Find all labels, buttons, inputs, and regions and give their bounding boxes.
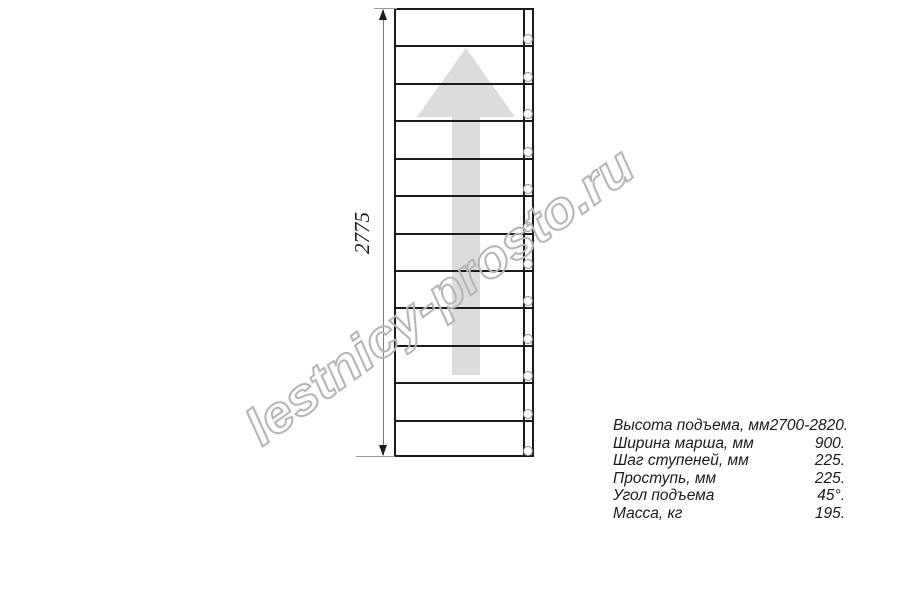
spec-label: Масса, кг (613, 505, 682, 523)
bolt-circle (523, 222, 533, 232)
spec-label: Проступь, мм (613, 470, 716, 488)
stair-plan-outline (394, 8, 534, 457)
step-line (396, 158, 532, 160)
step-line (396, 307, 532, 309)
step-line (396, 382, 532, 384)
bolt-circle (523, 296, 533, 306)
spec-row: Угол подъема 45°. (613, 487, 845, 505)
extension-line-bottom (356, 456, 395, 457)
spec-row: Проступь, мм 225. (613, 470, 845, 488)
dimension-arrow-up-icon (379, 9, 387, 20)
step-line (396, 420, 532, 422)
spec-value: 225. (815, 452, 845, 470)
step-line (396, 45, 532, 47)
bolt-circle (523, 371, 533, 381)
spec-row: Ширина марша, мм 900. (613, 435, 845, 453)
spec-row: Масса, кг 195. (613, 505, 845, 523)
step-line (396, 270, 532, 272)
bolt-circle (523, 184, 533, 194)
step-line (396, 120, 532, 122)
spec-label: Высота подъема, мм (613, 417, 770, 435)
bolt-circle (523, 72, 533, 82)
bolt-circle (523, 34, 533, 44)
step-line (396, 83, 532, 85)
step-line (396, 195, 532, 197)
bolt-circle (523, 147, 533, 157)
spec-value: 225. (815, 470, 845, 488)
spec-row: Высота подъема, мм 2700-2820. (613, 417, 845, 435)
bolt-circle (523, 334, 533, 344)
bolt-circle (523, 409, 533, 419)
spec-label: Ширина марша, мм (613, 435, 754, 453)
step-line (396, 345, 532, 347)
step-line (396, 233, 532, 235)
spec-value: 2700-2820. (770, 417, 848, 435)
dimension-line (383, 10, 384, 455)
bolt-circle (523, 446, 533, 456)
spec-label: Шаг ступеней, мм (613, 452, 749, 470)
page-canvas: 2775 lestnicy-prosto.ru Высота подъема, … (0, 0, 900, 600)
dimension-label: 2775 (350, 203, 374, 263)
spec-value: 900. (815, 435, 845, 453)
spec-label: Угол подъема (613, 487, 714, 505)
specs-table: Высота подъема, мм 2700-2820. Ширина мар… (613, 417, 845, 523)
dimension-arrow-down-icon (379, 445, 387, 456)
spec-value: 195. (815, 505, 845, 523)
spec-value: 45°. (817, 487, 845, 505)
bolt-circle (523, 109, 533, 119)
bolt-circle (523, 259, 533, 269)
spec-row: Шаг ступеней, мм 225. (613, 452, 845, 470)
